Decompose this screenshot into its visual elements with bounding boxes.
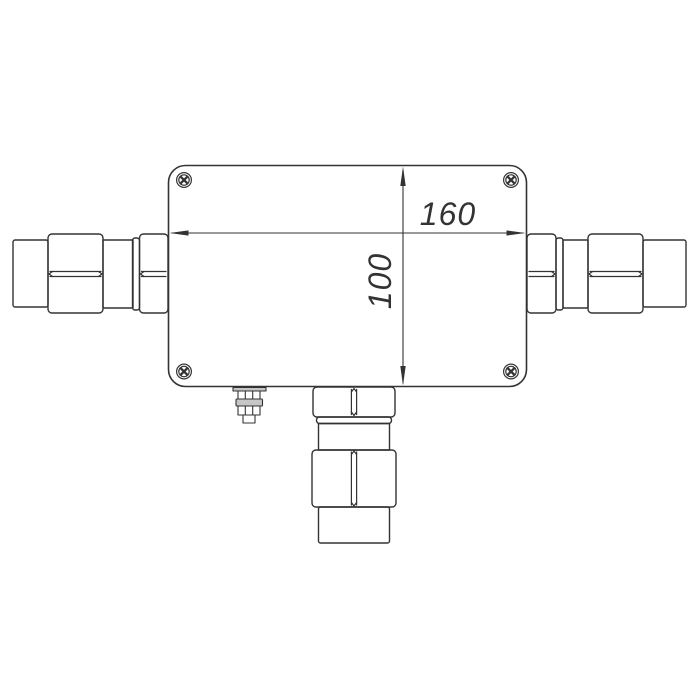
screw-bottom-right-icon xyxy=(504,364,519,379)
screw-top-left-icon xyxy=(177,173,192,188)
panel-hex xyxy=(140,234,169,313)
end-cap xyxy=(643,240,686,307)
panel-hex xyxy=(527,234,556,313)
end-cap xyxy=(319,507,390,543)
panel-hex xyxy=(313,387,395,417)
left-cable-gland xyxy=(13,234,168,313)
coupling-ring xyxy=(317,417,392,424)
vent-hex-lower xyxy=(238,406,260,415)
right-cable-gland xyxy=(527,234,686,313)
body-cylinder xyxy=(103,240,133,308)
bottom-cable-gland xyxy=(312,387,396,543)
hex-nut xyxy=(312,450,396,507)
hex-nut xyxy=(48,234,103,313)
technical-drawing-canvas: 160 100 xyxy=(0,0,700,700)
coupling-ring xyxy=(556,238,563,310)
vent-band xyxy=(236,399,263,406)
end-cap xyxy=(13,240,48,307)
body-cylinder xyxy=(563,240,588,308)
screw-top-right-icon xyxy=(504,173,519,188)
height-dimension-label: 100 xyxy=(362,253,398,309)
screw-bottom-left-icon xyxy=(177,364,192,379)
vent-hex-upper xyxy=(238,391,260,399)
vent-tip xyxy=(243,415,255,423)
body-cylinder xyxy=(319,424,390,451)
hex-nut xyxy=(588,234,643,313)
vent-fitting xyxy=(233,388,266,424)
drawing-root: 160 100 xyxy=(13,166,686,544)
width-dimension-label: 160 xyxy=(420,196,476,232)
